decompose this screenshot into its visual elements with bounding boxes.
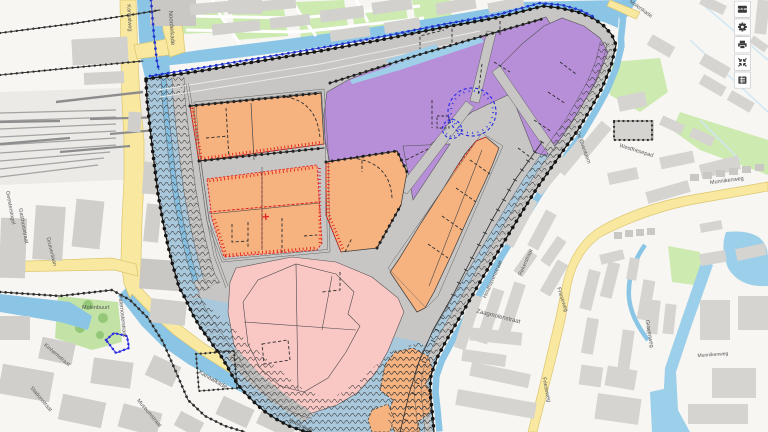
svg-text:Molenbuurt: Molenbuurt <box>82 305 110 311</box>
